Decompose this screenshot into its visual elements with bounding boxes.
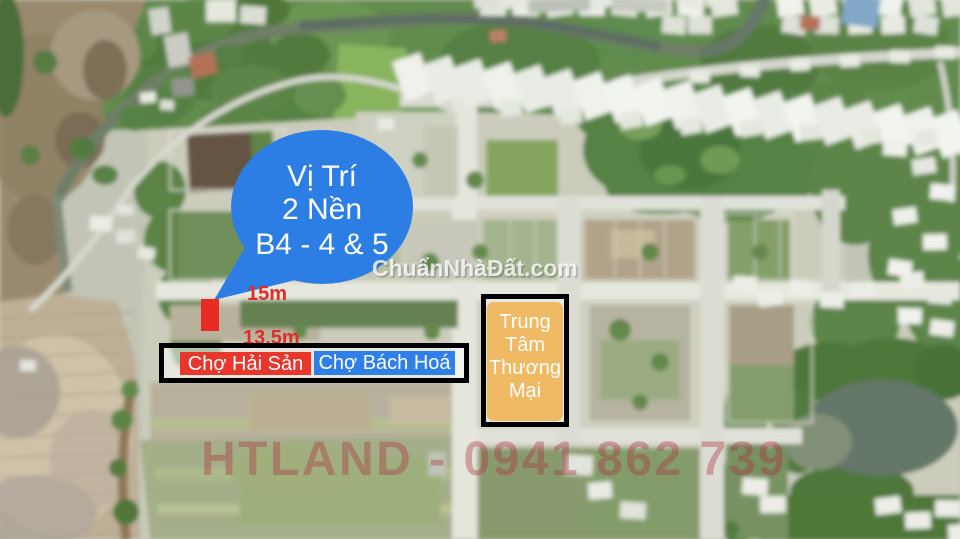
svg-text:Vị Trí: Vị Trí: [287, 160, 358, 193]
svg-text:2 Nền: 2 Nền: [282, 193, 362, 226]
svg-text:B4 - 4 & 5: B4 - 4 & 5: [255, 228, 388, 261]
